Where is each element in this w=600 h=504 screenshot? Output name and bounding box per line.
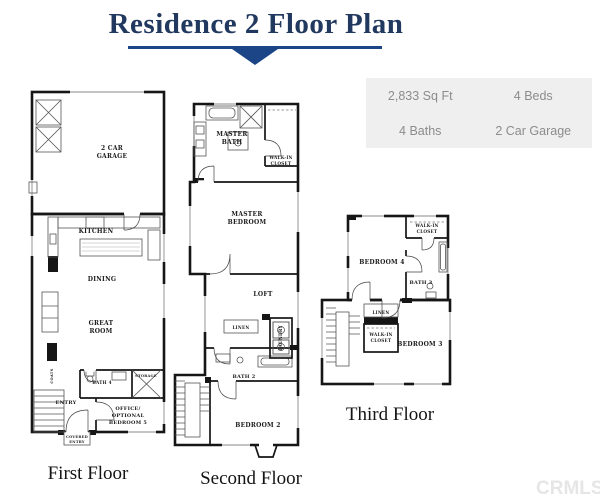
room-label-master-bath: MASTER <box>216 131 248 138</box>
room-label-master-bedroom: MASTER <box>231 211 263 218</box>
room-label-linen: LINEN <box>372 310 389 315</box>
room-label-covered-entry: COVERED <box>66 435 88 439</box>
room-label-bedroom3: BEDROOM 3 <box>397 341 442 348</box>
room-label-dining: DINING <box>88 276 116 283</box>
second-floor-plan: MASTER BATH WALK-IN CLOSET MASTER BEDROO… <box>170 96 304 464</box>
spec-baths: 4 Baths <box>399 124 441 138</box>
room-label-bedroom2: BEDROOM 2 <box>235 422 280 429</box>
floor-plan-page: Residence 2 Floor Plan 2,833 Sq Ft 4 Bed… <box>0 0 600 504</box>
room-label-coats: COATS <box>50 368 54 383</box>
third-floor-room-labels: BEDROOM 4 WALK-IN CLOSET BATH 3 LINEN WA… <box>359 223 442 348</box>
down-arrow-icon <box>232 49 278 65</box>
room-label-entry: ENTRY <box>56 400 77 406</box>
svg-text:CLOSET: CLOSET <box>417 229 438 234</box>
svg-text:BATH: BATH <box>222 139 243 146</box>
svg-text:BEDROOM: BEDROOM <box>228 219 267 226</box>
room-label-bath4: BATH 4 <box>92 380 112 385</box>
svg-text:OPTIONAL: OPTIONAL <box>112 413 145 419</box>
svg-text:ENTRY: ENTRY <box>69 440 85 444</box>
svg-text:ROOM: ROOM <box>89 328 112 335</box>
svg-text:CLOSET: CLOSET <box>371 338 392 343</box>
room-label-bath3: BATH 3 <box>410 280 433 286</box>
first-floor-label: First Floor <box>16 463 160 485</box>
room-label-garage: 2 CAR <box>101 145 124 152</box>
second-floor-label: Second Floor <box>181 468 321 490</box>
room-label-linen: LINEN <box>232 325 249 330</box>
room-label-bedroom4: BEDROOM 4 <box>359 259 404 266</box>
room-label-walkin-closet-top: WALK-IN <box>414 223 438 228</box>
spec-box: 2,833 Sq Ft 4 Beds 4 Baths 2 Car Garage <box>366 78 592 148</box>
room-label-storage: STORAGE <box>135 374 157 378</box>
page-title: Residence 2 Floor Plan <box>100 8 412 41</box>
room-label-kitchen: KITCHEN <box>79 228 114 235</box>
spec-beds: 4 Beds <box>514 89 553 103</box>
room-label-loft: LOFT <box>253 291 272 298</box>
svg-text:CLOSET: CLOSET <box>271 161 292 166</box>
first-floor-fixtures <box>29 100 161 445</box>
third-floor-plan: BEDROOM 4 WALK-IN CLOSET BATH 3 LINEN WA… <box>318 208 458 400</box>
room-label-walkin-closet: WALK-IN <box>268 155 292 160</box>
spec-sqft: 2,833 Sq Ft <box>388 89 453 103</box>
second-floor-room-labels: MASTER BATH WALK-IN CLOSET MASTER BEDROO… <box>216 131 292 429</box>
room-label-office: OFFICE/ <box>115 406 140 412</box>
svg-text:GARAGE: GARAGE <box>97 153 128 160</box>
first-floor-room-labels: 2 CAR GARAGE KITCHEN DINING GREAT ROOM B… <box>50 145 157 444</box>
room-label-walkin-closet: WALK-IN <box>368 332 392 337</box>
room-label-bath2: BATH 2 <box>233 374 256 380</box>
crmls-watermark: CRMLS <box>536 478 600 500</box>
room-label-laundry: LAUNDRY <box>278 325 283 351</box>
room-label-great-room: GREAT <box>89 320 114 327</box>
third-floor-label: Third Floor <box>320 404 460 426</box>
first-floor-plan: 2 CAR GARAGE KITCHEN DINING GREAT ROOM B… <box>28 84 168 462</box>
svg-text:BEDROOM 5: BEDROOM 5 <box>109 420 148 426</box>
spec-garage: 2 Car Garage <box>495 124 571 138</box>
